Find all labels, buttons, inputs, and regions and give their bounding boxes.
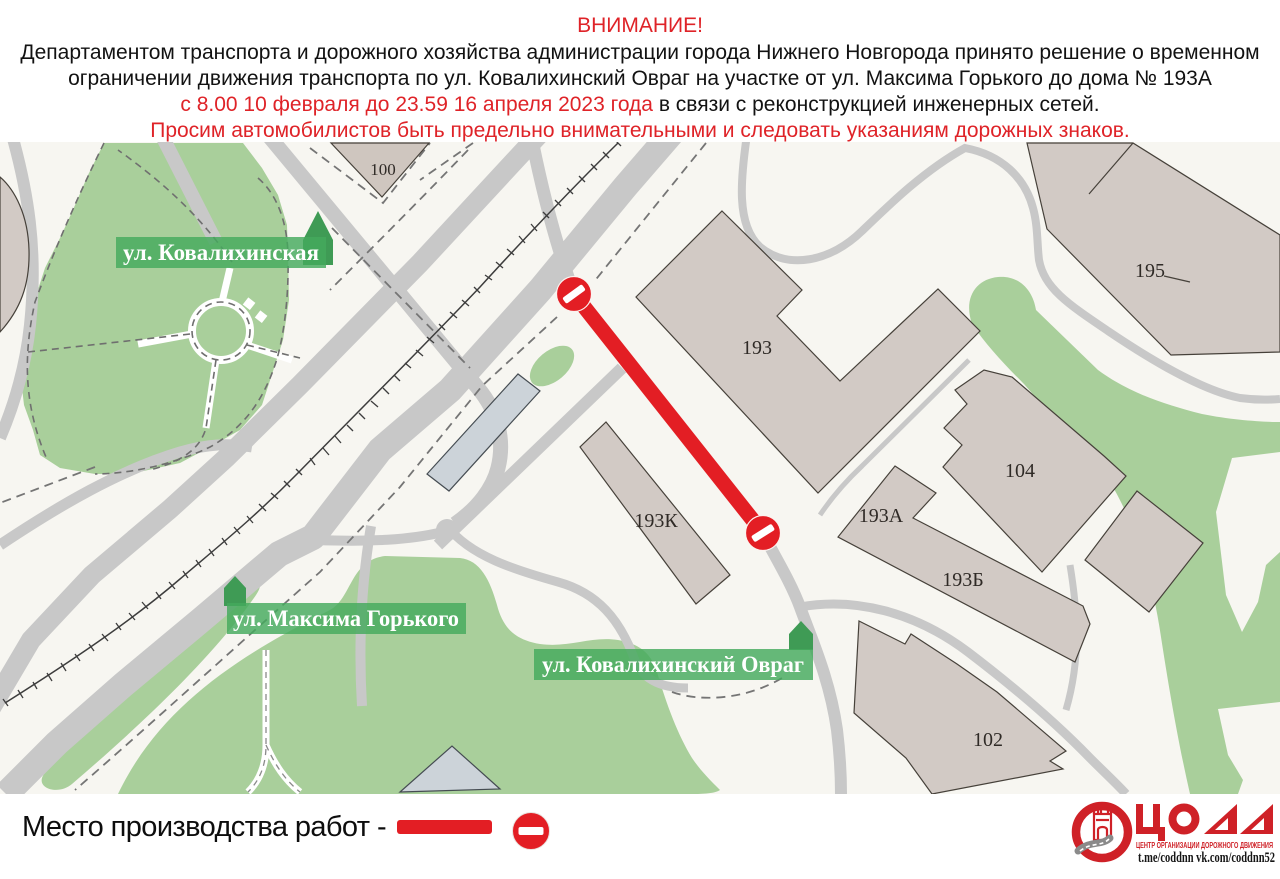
svg-text:104: 104 (1005, 460, 1035, 482)
svg-text:100: 100 (370, 160, 396, 179)
svg-text:t.me/coddnn vk.com/coddnn52: t.me/coddnn vk.com/coddnn52 (1138, 850, 1275, 866)
svg-text:195: 195 (1135, 260, 1165, 282)
svg-text:102: 102 (973, 729, 1003, 751)
svg-text:193А: 193А (859, 505, 904, 527)
svg-text:ЦЕНТР ОРГАНИЗАЦИИ ДОРОЖНОГО ДВ: ЦЕНТР ОРГАНИЗАЦИИ ДОРОЖНОГО ДВИЖЕНИЯ (1136, 841, 1273, 850)
svg-text:193: 193 (742, 337, 772, 359)
svg-text:193К: 193К (634, 510, 678, 532)
svg-text:193Б: 193Б (942, 569, 983, 591)
svg-text:ул. Ковалихинский Овраг: ул. Ковалихинский Овраг (542, 652, 804, 677)
svg-text:ул. Ковалихинская: ул. Ковалихинская (123, 240, 319, 265)
svg-text:ул. Максима Горького: ул. Максима Горького (233, 606, 459, 631)
